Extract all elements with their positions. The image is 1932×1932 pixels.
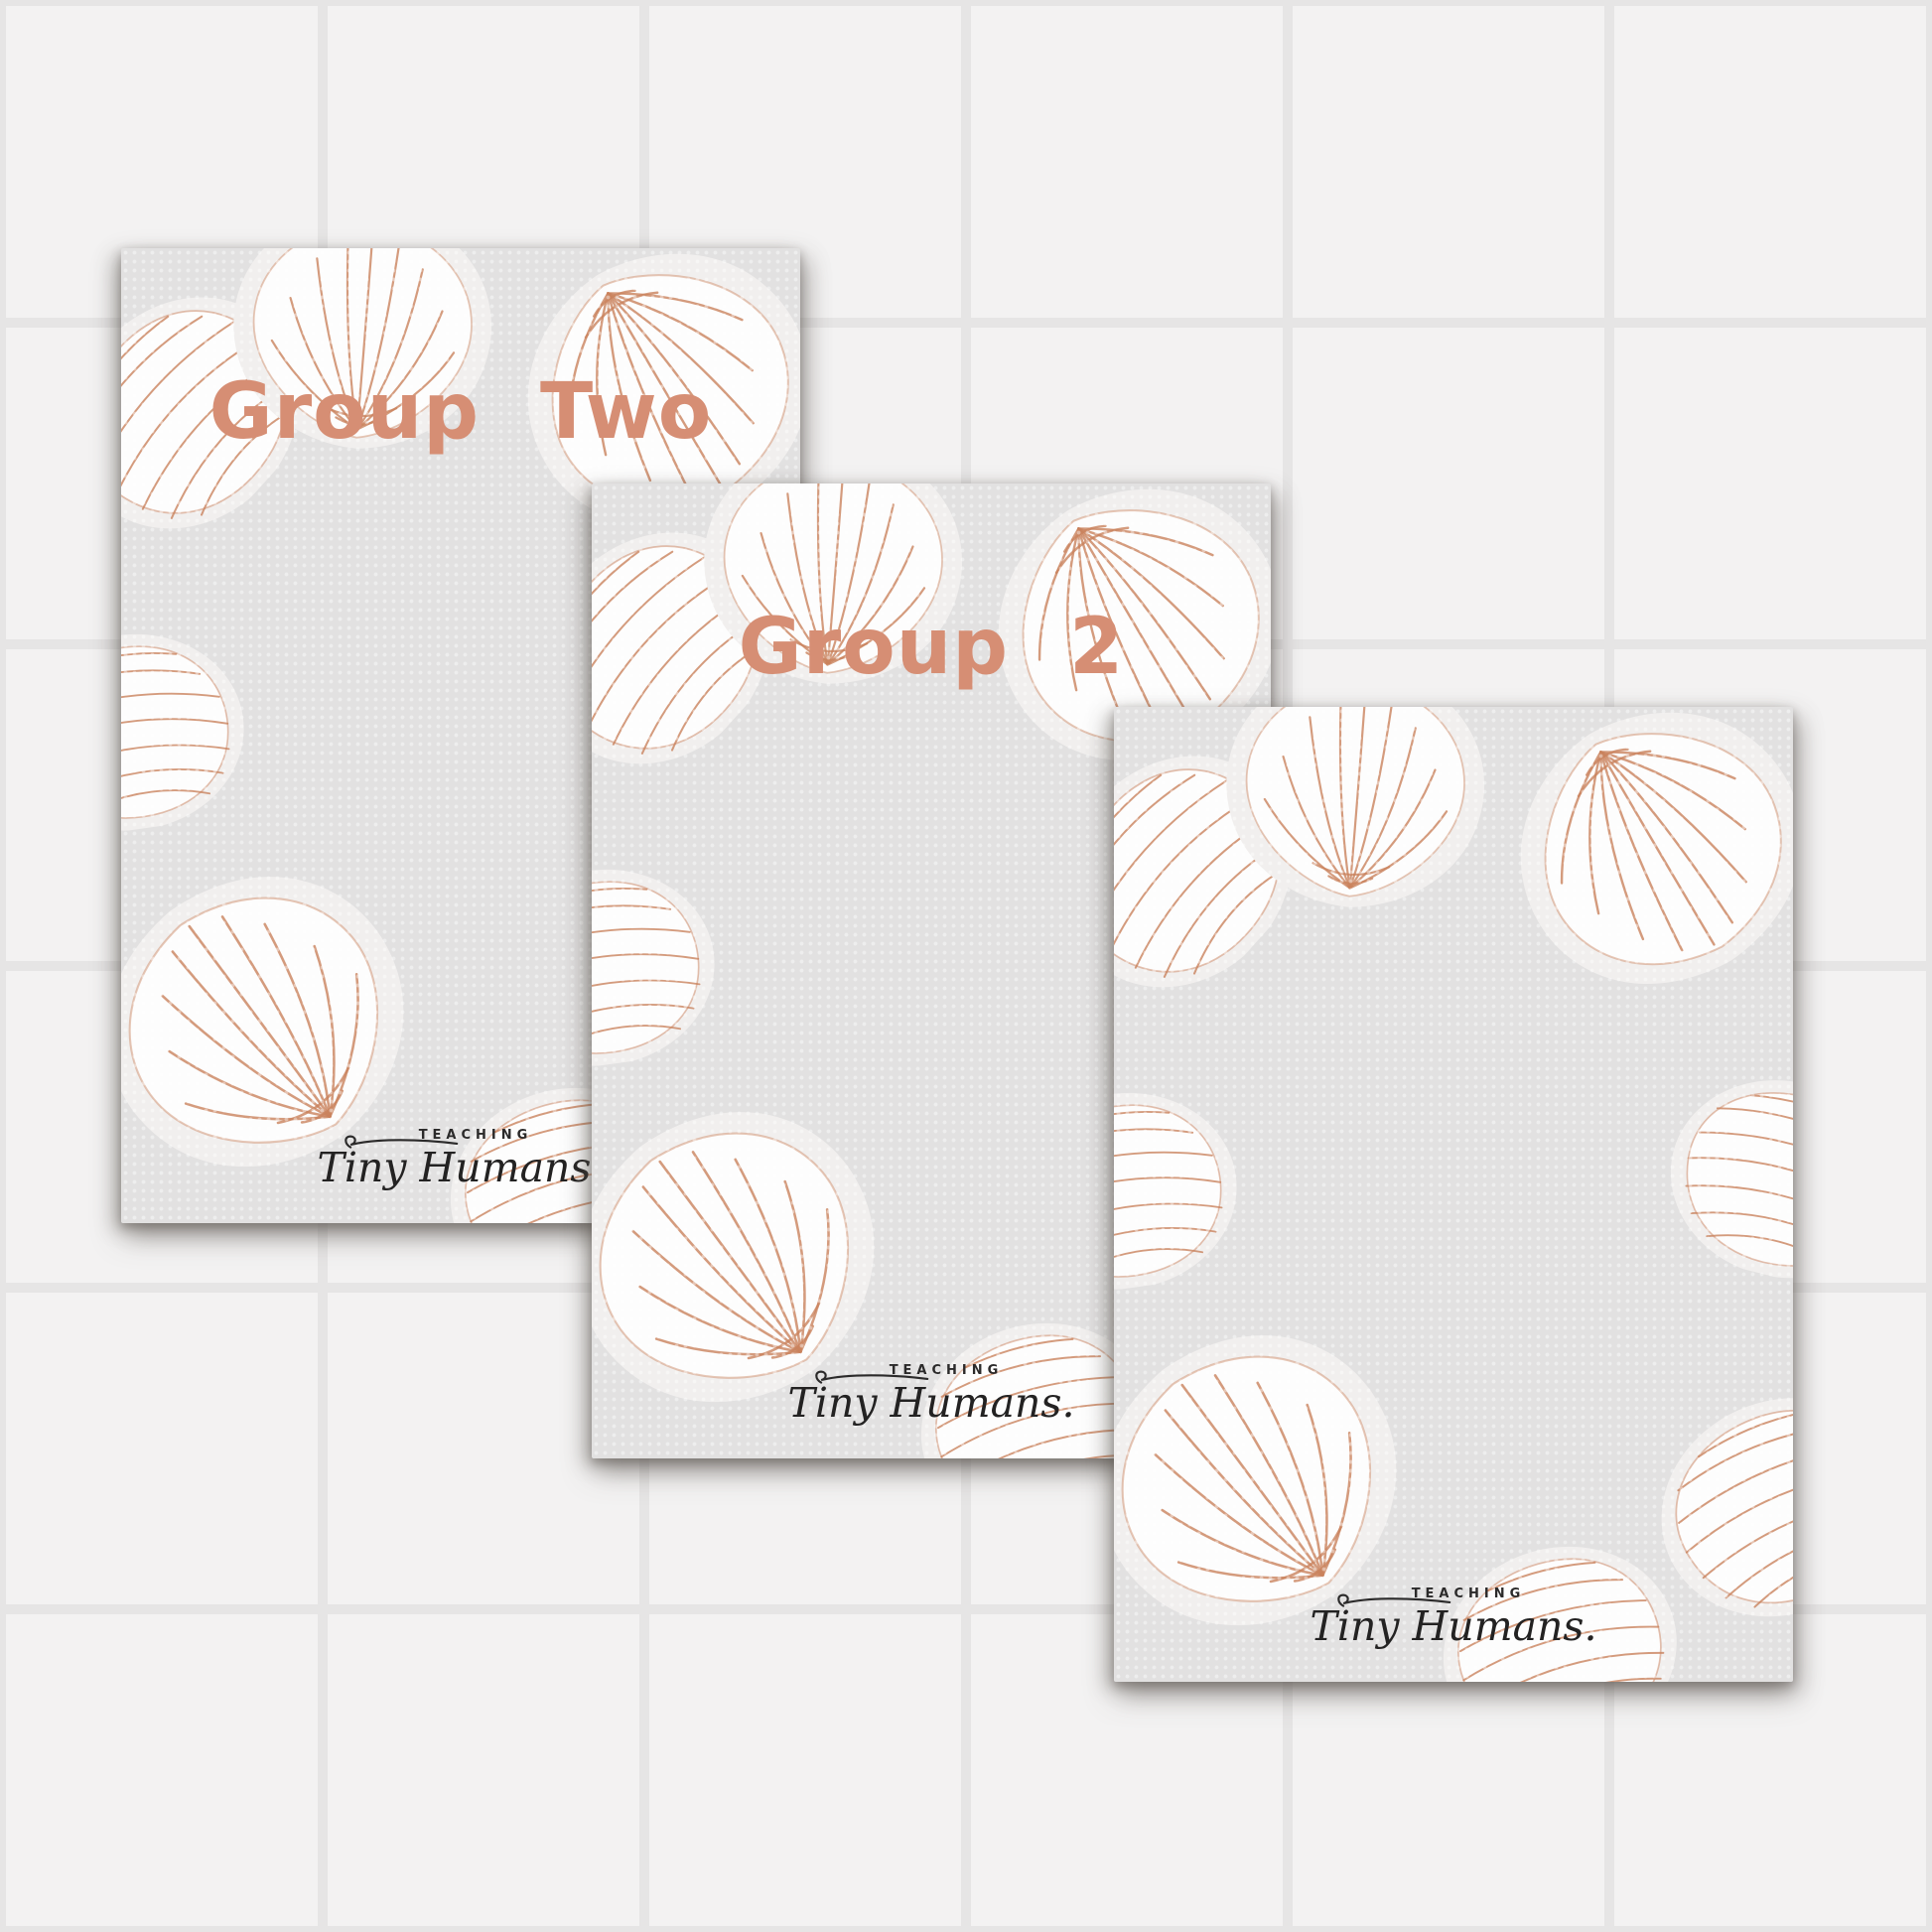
logo-teaching-text: TEACHING [1144,1587,1793,1601]
signature-flourish-stroke [342,1130,459,1156]
mockup-scene: Group Two TEACHING Tiny Humans. Group 2 … [0,0,1932,1932]
teaching-tiny-humans-logo: TEACHING Tiny Humans. [1114,1587,1793,1666]
group-card-blank: TEACHING Tiny Humans. [1114,707,1793,1682]
logo-script-text: Tiny Humans. [1114,1604,1793,1649]
card-title: Group 2 [592,609,1271,686]
clam-shell-icon [121,619,259,845]
signature-flourish-stroke [1334,1588,1451,1614]
card-title: Group Two [121,373,800,451]
clam-shell-icon [1648,1055,1793,1301]
scallop-shell-icon [1213,707,1498,917]
shell-border-decoration [1114,707,1793,1682]
clam-shell-icon [1114,1077,1252,1304]
scallop-shell-icon [1460,707,1793,1041]
clam-shell-icon [592,854,730,1080]
signature-flourish-stroke [812,1365,929,1391]
